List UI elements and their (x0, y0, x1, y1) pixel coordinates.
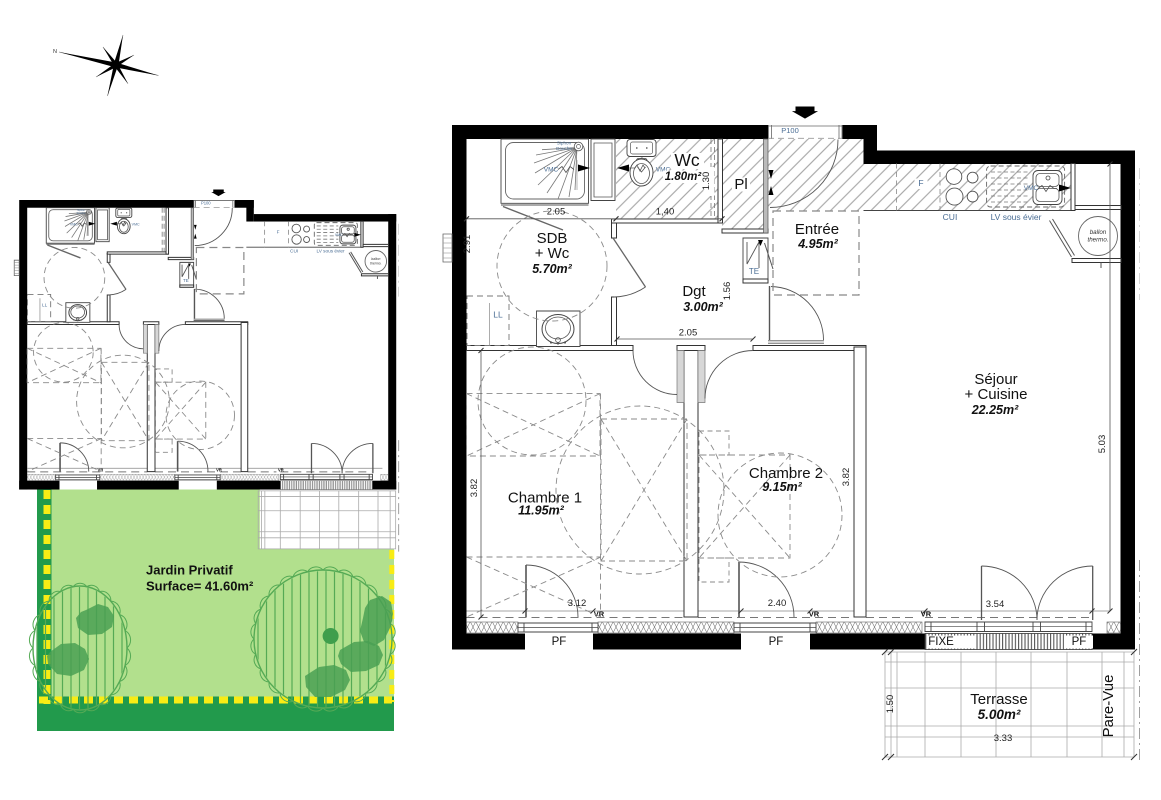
svg-text:Terrasse: Terrasse (970, 691, 1028, 708)
svg-text:Pare-Vue: Pare-Vue (1100, 675, 1117, 738)
svg-text:Pl: Pl (734, 176, 747, 193)
svg-text:11.95m²: 11.95m² (518, 504, 564, 518)
svg-text:2.05: 2.05 (547, 207, 566, 218)
svg-text:3.82: 3.82 (469, 479, 480, 498)
svg-text:3.82: 3.82 (841, 468, 852, 487)
svg-text:9.15m²: 9.15m² (762, 480, 802, 494)
svg-text:3.33: 3.33 (994, 733, 1013, 744)
svg-text:3.00m²: 3.00m² (683, 300, 723, 314)
svg-text:2.05: 2.05 (679, 328, 698, 339)
svg-text:5.03: 5.03 (1097, 435, 1108, 454)
svg-text:+ Wc: + Wc (535, 245, 570, 262)
svg-text:Entrée: Entrée (795, 221, 839, 238)
svg-text:Wc: Wc (674, 150, 700, 170)
svg-text:2.40: 2.40 (768, 598, 787, 609)
svg-text:1.30: 1.30 (701, 172, 712, 191)
svg-text:+ Cuisine: + Cuisine (965, 386, 1028, 403)
svg-text:1.80m²: 1.80m² (665, 171, 703, 183)
svg-text:N: N (53, 49, 57, 55)
svg-text:1.56: 1.56 (722, 282, 733, 301)
svg-text:5.70m²: 5.70m² (532, 262, 572, 276)
svg-text:5.00m²: 5.00m² (978, 707, 1021, 722)
svg-text:Surface= 41.60m²: Surface= 41.60m² (146, 579, 254, 594)
svg-text:3.54: 3.54 (986, 599, 1005, 610)
svg-text:Jardin Privatif: Jardin Privatif (146, 563, 233, 578)
svg-text:Dgt: Dgt (682, 283, 706, 300)
svg-text:4.95m²: 4.95m² (797, 237, 838, 251)
svg-text:PF: PF (769, 636, 784, 648)
svg-text:2.91: 2.91 (462, 235, 473, 254)
svg-text:3.12: 3.12 (568, 598, 587, 609)
svg-text:PF: PF (1072, 636, 1087, 648)
svg-text:PF: PF (552, 636, 567, 648)
svg-text:1.50: 1.50 (885, 695, 896, 714)
svg-text:22.25m²: 22.25m² (971, 403, 1019, 417)
svg-text:FIXE: FIXE (928, 636, 954, 648)
svg-text:1,40: 1,40 (656, 207, 675, 218)
